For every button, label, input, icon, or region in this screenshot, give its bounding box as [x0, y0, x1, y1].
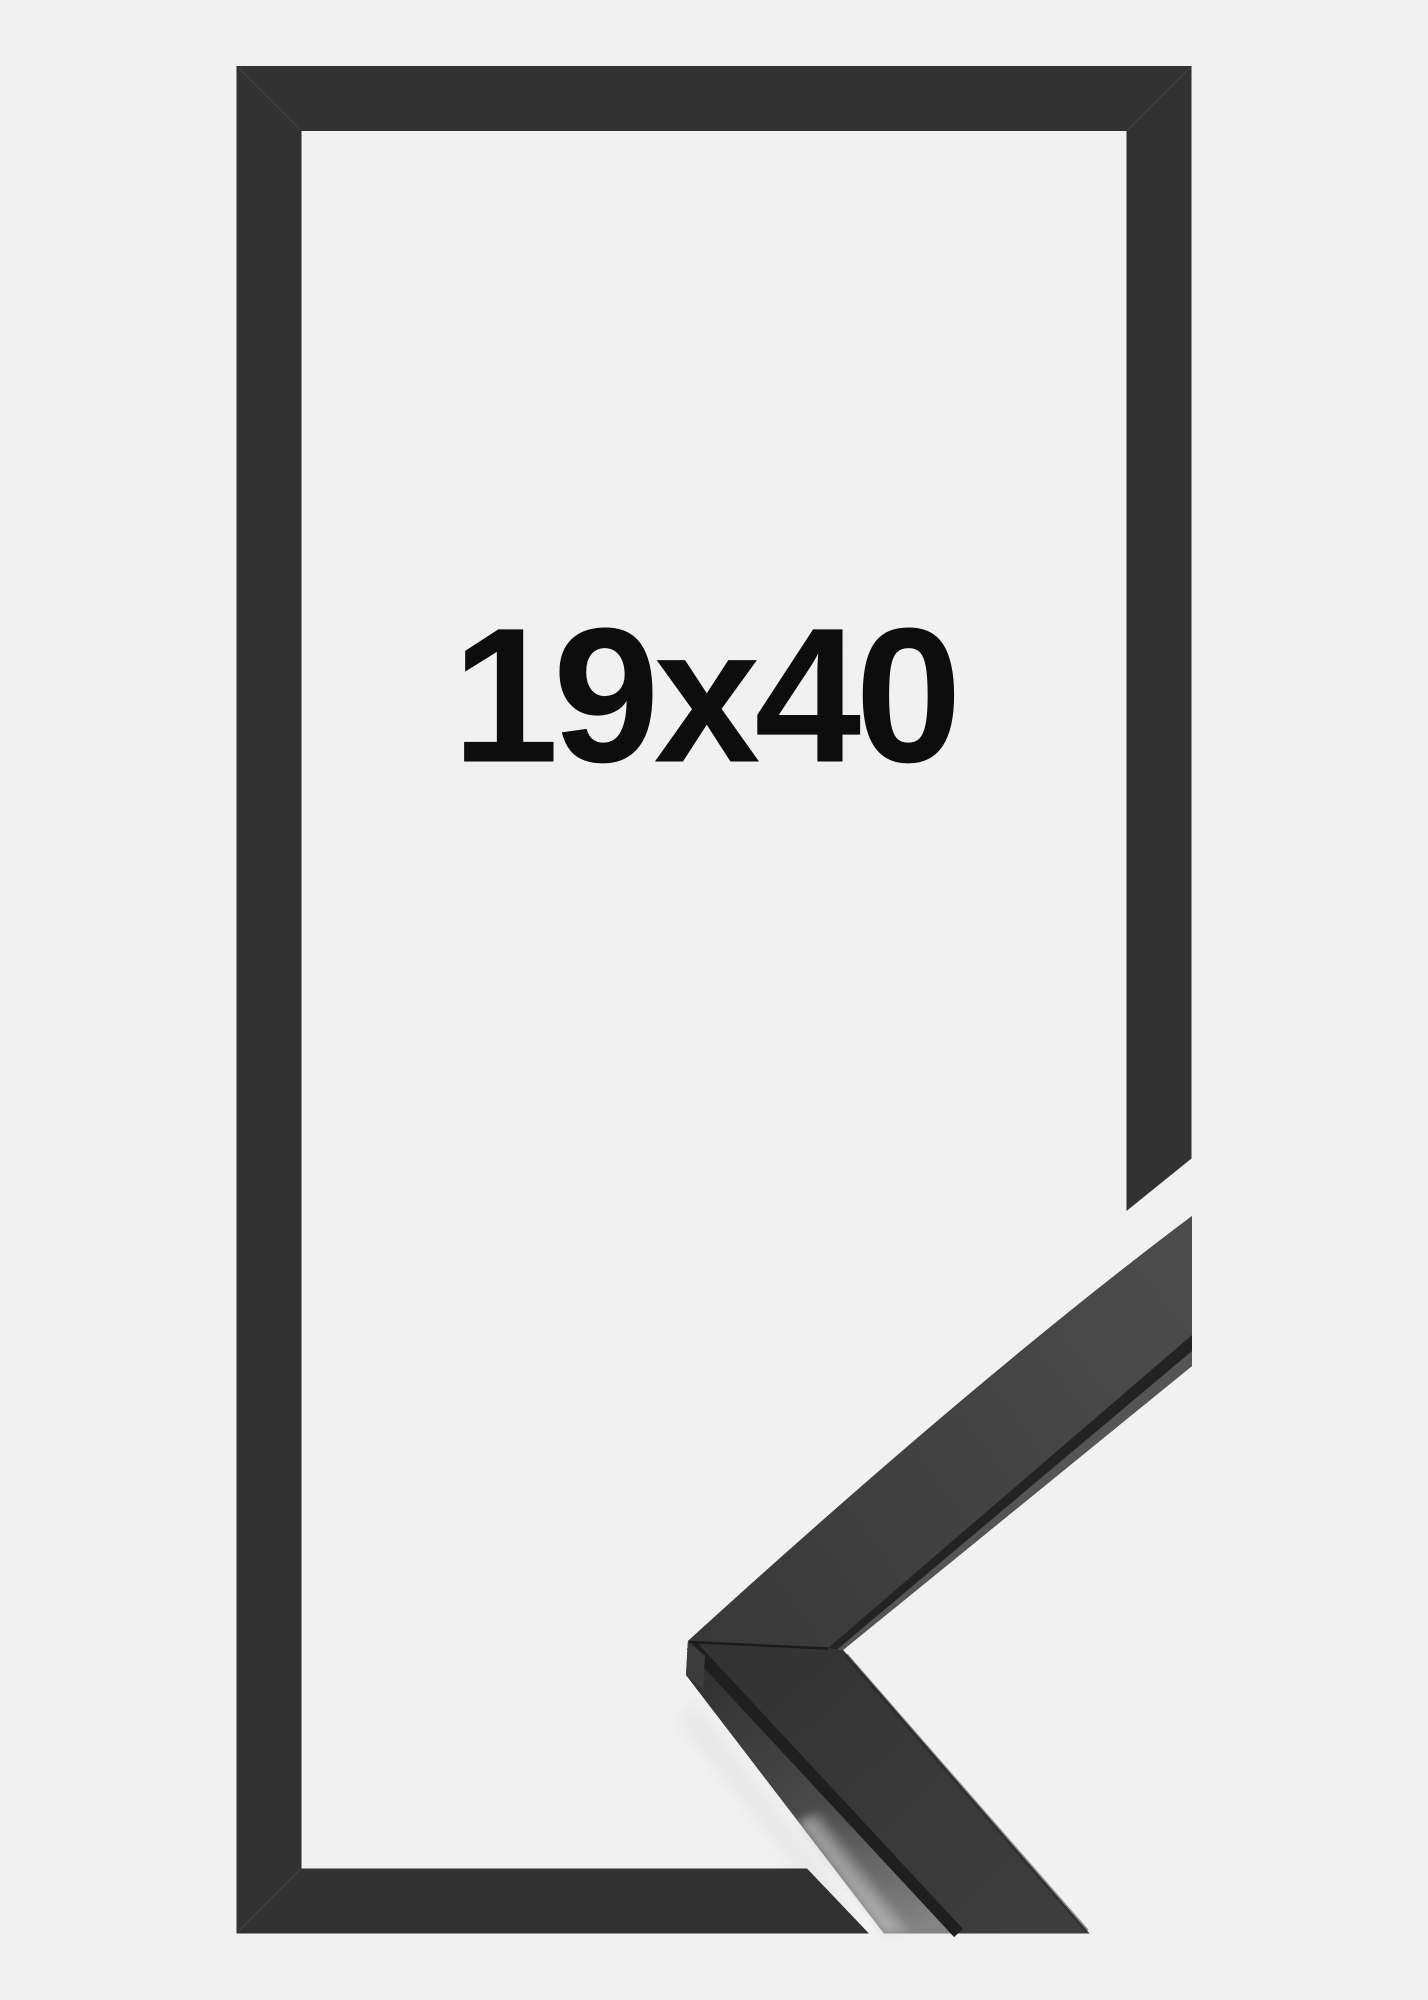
svg-text:19x40: 19x40: [452, 588, 956, 803]
